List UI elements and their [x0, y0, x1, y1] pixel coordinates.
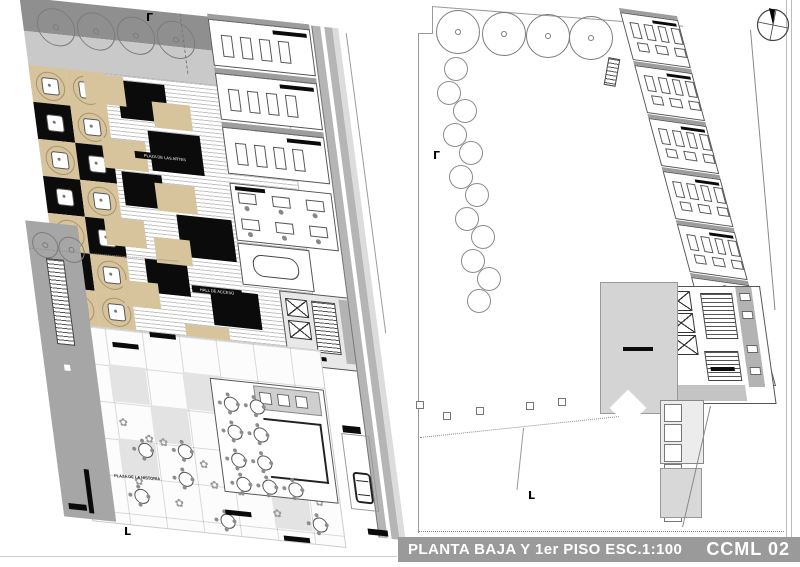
chair [244, 206, 250, 212]
office-desk [272, 196, 294, 216]
table-icon [230, 452, 247, 469]
paving-cell [150, 405, 192, 446]
desk [651, 95, 665, 106]
column [476, 407, 484, 415]
fixture [749, 367, 761, 375]
planter-icon [92, 191, 111, 210]
classroom [677, 224, 748, 280]
planter-circle-icon [453, 99, 477, 123]
plan-outline [418, 33, 419, 533]
platform-block [104, 217, 148, 249]
desk [658, 128, 671, 145]
desk [285, 95, 299, 118]
planter-icon [82, 117, 101, 136]
planter-icon [102, 265, 121, 284]
chair [278, 209, 284, 215]
desk [247, 91, 261, 114]
left-floor-plan: PLAZA DE LAS ARTES [12, 0, 420, 556]
plan-outline [418, 33, 432, 34]
desk [306, 199, 325, 212]
paving-cell [108, 364, 150, 405]
north-arrow-icon [752, 0, 794, 46]
fixture [742, 311, 754, 319]
desk [665, 148, 679, 159]
drawing-sheet: PLAZA DE LAS ARTES [0, 0, 800, 567]
flower-icon: ✿ [199, 459, 210, 471]
desk [688, 100, 702, 111]
planter-circle-icon [471, 225, 495, 249]
planter-icon [45, 113, 64, 132]
planter-circle-icon [459, 141, 483, 165]
planter-icon [50, 150, 69, 169]
chair [316, 239, 322, 245]
corner-mark: L [124, 526, 131, 537]
desk [700, 236, 713, 253]
desk [637, 42, 651, 53]
flower-icon: ✿ [174, 498, 185, 510]
storage-cell [664, 444, 682, 462]
dimension-line [750, 30, 775, 310]
column [443, 412, 451, 420]
desk [272, 196, 291, 209]
plaza-cell [38, 139, 80, 180]
planter-circle-icon [444, 57, 468, 81]
desk [657, 26, 670, 43]
desk [644, 75, 657, 92]
stair-icon [700, 293, 738, 339]
table-icon [287, 482, 304, 499]
chair [248, 232, 254, 238]
desk [699, 134, 712, 151]
office-desk [306, 199, 328, 219]
desk [655, 45, 669, 56]
sheet-edge-line [786, 0, 787, 540]
desk [221, 35, 235, 58]
desk [686, 183, 699, 200]
desk [672, 181, 685, 198]
chair [282, 235, 288, 241]
stair-icon [311, 301, 342, 356]
desk [716, 206, 730, 217]
planter-icon [107, 302, 126, 321]
column [526, 402, 534, 410]
classroom [648, 118, 719, 174]
sheet-code: CCML 02 [706, 539, 790, 560]
office-desk [241, 218, 263, 238]
desk [240, 37, 254, 60]
platform-block [83, 73, 127, 107]
desk [730, 259, 744, 270]
cafeteria [210, 378, 339, 504]
room-label-bar [710, 367, 735, 371]
table-icon [223, 396, 240, 413]
desk [702, 153, 716, 164]
desk [259, 39, 273, 62]
office-desk [309, 225, 331, 245]
fixture [739, 293, 751, 301]
sheet-edge-line [791, 0, 792, 540]
planter-circle-icon [465, 183, 489, 207]
sheet-dotted-edge [418, 531, 784, 532]
desk [698, 204, 712, 215]
chair [312, 213, 318, 219]
table-icon [235, 476, 252, 493]
desk [700, 185, 713, 202]
tree-icon [482, 12, 526, 56]
desk [629, 22, 642, 39]
room-label-bar [68, 503, 87, 511]
desk [228, 89, 242, 112]
ramp-icon [46, 258, 75, 346]
desk [235, 143, 249, 166]
flower-icon: ✿ [272, 509, 283, 521]
classroom [620, 12, 691, 68]
plaza-cell [28, 65, 70, 106]
table-icon [227, 424, 244, 441]
desk [727, 240, 740, 257]
plaza-cell [80, 180, 122, 221]
platform-block [154, 183, 198, 215]
desk [679, 201, 693, 212]
planter-circle-icon [467, 289, 491, 313]
classroom [634, 65, 705, 121]
desk [266, 93, 280, 116]
elevator-icon [288, 320, 312, 340]
desk [686, 234, 699, 251]
meeting-room [237, 243, 315, 293]
terrace-strip [660, 468, 702, 518]
desk [685, 132, 698, 149]
room-label-bar [368, 528, 389, 536]
leader-line [517, 428, 524, 490]
column [558, 398, 566, 406]
planter-icon [40, 76, 59, 95]
plaza-cell [43, 176, 85, 217]
platform-block [122, 280, 161, 310]
office-desk [275, 222, 297, 242]
elevator-icon [285, 298, 309, 318]
column [64, 364, 71, 371]
desk [643, 24, 656, 41]
desk [278, 41, 292, 64]
corner-mark: Γ [433, 150, 440, 161]
desk [671, 79, 684, 96]
desk [685, 81, 698, 98]
column [416, 401, 424, 409]
title-bar: PLANTA BAJA Y 1er PISO ESC.1:100 CCML 02 [398, 537, 800, 562]
corner-mark: Γ [146, 12, 153, 23]
desk [238, 192, 257, 205]
appliance [295, 396, 309, 409]
terrace-notch [610, 390, 647, 427]
desk [714, 238, 727, 255]
appliance [277, 394, 291, 407]
planter-circle-icon [477, 267, 501, 291]
desk [292, 149, 306, 172]
room-label-bar [623, 347, 653, 351]
plaza-cell [33, 102, 75, 143]
storage-cell [664, 424, 682, 442]
platform-block [154, 237, 193, 267]
classroom-column [208, 19, 330, 185]
classroom [663, 171, 734, 227]
desk [684, 151, 698, 162]
tree-icon [526, 14, 570, 58]
sheet-title: PLANTA BAJA Y 1er PISO ESC.1:100 [408, 541, 682, 558]
desk [672, 130, 685, 147]
desk [712, 257, 726, 268]
desk [241, 218, 260, 231]
storage-cell [664, 404, 682, 422]
office-room [229, 183, 339, 252]
flower-icon: ✿ [158, 437, 169, 449]
table-icon [261, 479, 278, 496]
bar-counter [263, 418, 329, 484]
office-desk [238, 192, 260, 212]
stair-icon [704, 351, 742, 381]
desk [273, 147, 287, 170]
plan-outline [432, 6, 433, 34]
tree-icon [436, 10, 480, 54]
desk [657, 77, 670, 94]
right-floor-plan: L [408, 0, 800, 567]
desk [694, 254, 708, 265]
flower-icon: ✿ [209, 480, 220, 492]
meeting-table [252, 254, 301, 281]
storage-grid [660, 400, 704, 464]
corner-mark: L [528, 490, 535, 501]
desk [254, 145, 268, 168]
planter-icon [55, 187, 74, 206]
desk [713, 187, 726, 204]
desk [671, 28, 684, 45]
desk [309, 225, 328, 238]
terrace-gray [600, 282, 678, 414]
flower-icon: ✿ [118, 417, 129, 429]
desk [669, 98, 683, 109]
fixture [746, 345, 758, 353]
desk [673, 47, 687, 58]
tree-icon [569, 16, 613, 60]
platform-block [152, 101, 193, 131]
desk [275, 222, 294, 235]
exterior-stair-icon [604, 57, 621, 87]
sheet-edge-line [0, 556, 397, 557]
